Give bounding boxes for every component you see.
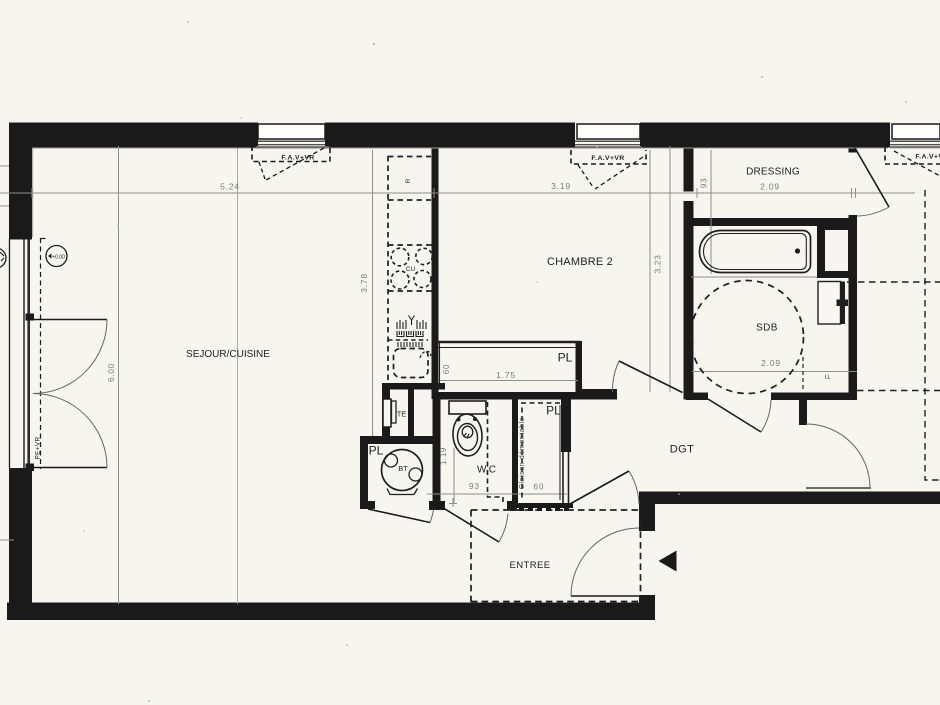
svg-text:2.09: 2.09 bbox=[760, 182, 780, 192]
svg-text:Cloison démontable: Cloison démontable bbox=[517, 417, 526, 490]
svg-text:R: R bbox=[405, 178, 412, 183]
svg-text:W.C: W.C bbox=[477, 465, 496, 476]
svg-text:F.A.V+VR: F.A.V+VR bbox=[281, 155, 314, 162]
svg-text:F.A.V+VR: F.A.V+VR bbox=[591, 155, 624, 162]
svg-text:PL: PL bbox=[369, 444, 384, 458]
svg-text:5.24: 5.24 bbox=[220, 182, 240, 192]
svg-text:6.00: 6.00 bbox=[106, 363, 116, 382]
svg-text:TE: TE bbox=[397, 410, 407, 419]
svg-text:DGT: DGT bbox=[670, 444, 694, 456]
svg-text:PE+VR: PE+VR bbox=[35, 436, 42, 459]
svg-text:60: 60 bbox=[442, 364, 451, 374]
svg-text:93: 93 bbox=[469, 482, 480, 491]
svg-text:+0.00: +0.00 bbox=[52, 254, 65, 260]
svg-text:2.09: 2.09 bbox=[761, 358, 781, 368]
svg-text:PL: PL bbox=[558, 351, 573, 365]
svg-text:F.A.V+VR: F.A.V+VR bbox=[915, 154, 940, 161]
svg-text:DRESSING: DRESSING bbox=[746, 167, 800, 178]
svg-text:LL: LL bbox=[825, 375, 831, 381]
svg-text:60: 60 bbox=[534, 483, 545, 492]
svg-text:1.19: 1.19 bbox=[439, 447, 448, 465]
svg-text:CU: CU bbox=[406, 266, 416, 273]
svg-text:SEJOUR/CUISINE: SEJOUR/CUISINE bbox=[186, 349, 270, 360]
svg-text:3.78: 3.78 bbox=[359, 273, 369, 293]
svg-text:3.23: 3.23 bbox=[653, 255, 663, 274]
svg-text:PL: PL bbox=[546, 404, 561, 418]
svg-text:93: 93 bbox=[700, 178, 709, 188]
svg-text:BT: BT bbox=[398, 464, 408, 473]
svg-text:3.19: 3.19 bbox=[551, 181, 571, 191]
svg-text:CHAMBRE 2: CHAMBRE 2 bbox=[547, 256, 613, 268]
svg-text:SDB: SDB bbox=[756, 323, 778, 334]
svg-text:ENTREE: ENTREE bbox=[510, 560, 551, 571]
svg-text:1.75: 1.75 bbox=[496, 370, 516, 380]
